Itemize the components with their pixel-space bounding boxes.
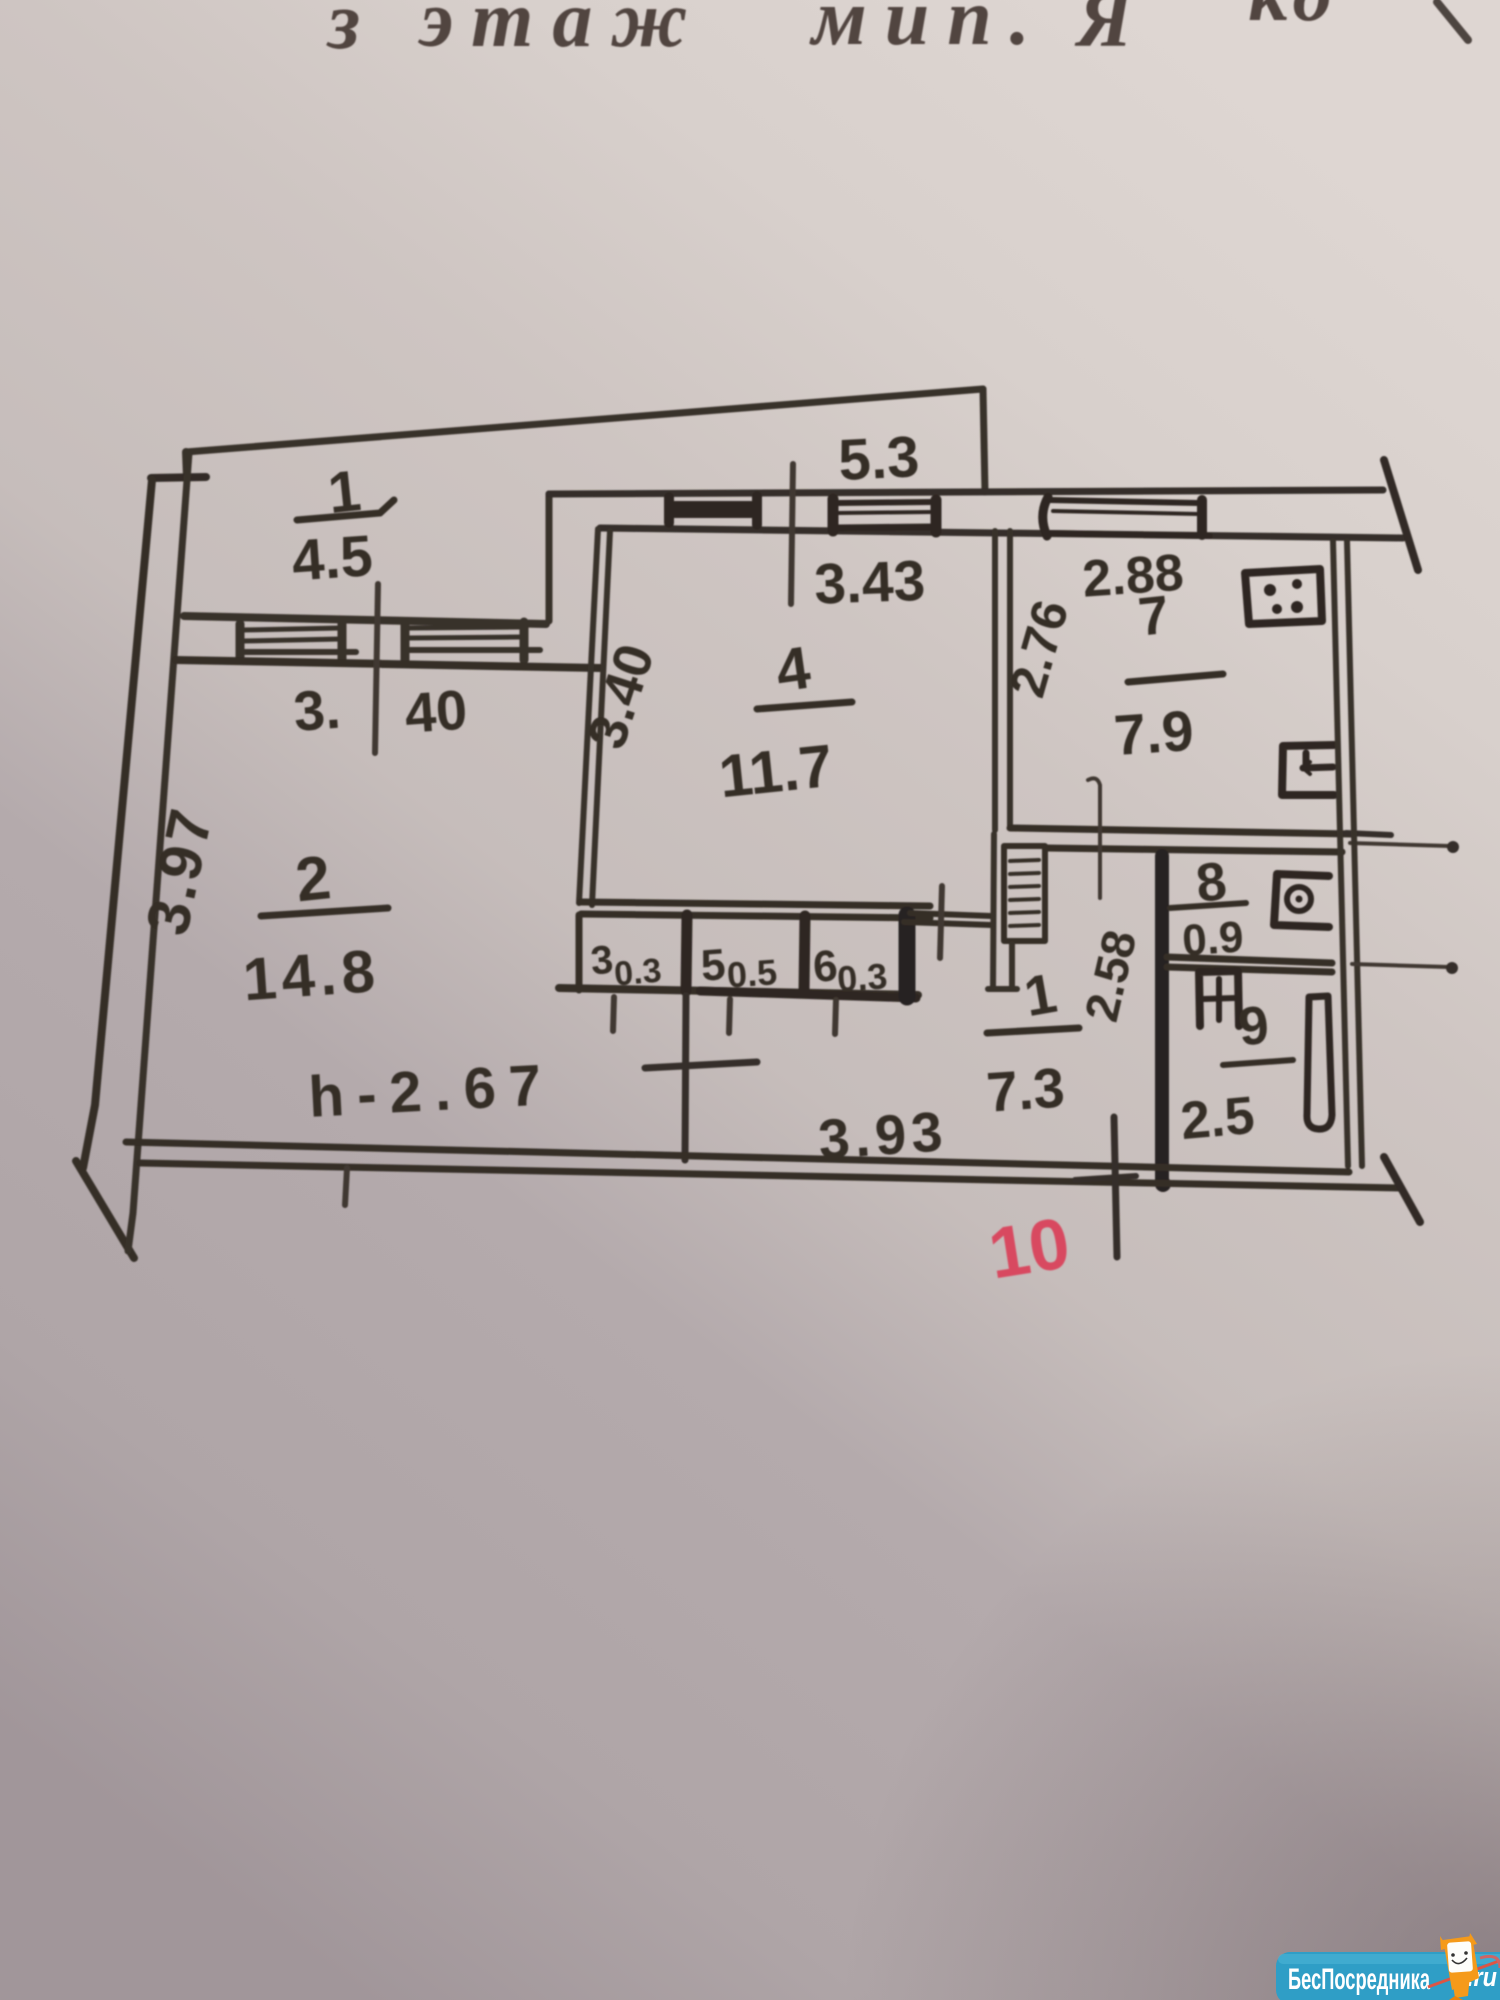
svg-text:2.5: 2.5 [1178,1086,1257,1151]
svg-text:Я: Я [1074,0,1135,64]
svg-text:БесПосредника: БесПосредника [1288,1963,1430,1996]
svg-text:7: 7 [1136,585,1172,648]
svg-text:7.3: 7.3 [985,1055,1067,1123]
svg-text:6: 6 [811,941,839,992]
svg-text:3.93: 3.93 [816,1099,949,1171]
svg-text:11.7: 11.7 [716,732,836,810]
svg-text:h-2.67: h-2.67 [307,1052,556,1130]
svg-text:0.5: 0.5 [726,951,779,995]
svg-text:мип.: мип. [809,0,1048,62]
svg-text:7.9: 7.9 [1112,699,1196,768]
svg-text:40: 40 [403,678,470,745]
svg-text:5: 5 [699,940,727,991]
svg-text:4.5: 4.5 [290,523,375,593]
svg-text:10: 10 [983,1203,1075,1295]
svg-text:0.9: 0.9 [1181,912,1245,965]
svg-text:3.43: 3.43 [813,549,926,617]
svg-text:0.3: 0.3 [836,955,889,999]
svg-text:з: з [326,0,360,66]
svg-text:14.8: 14.8 [241,937,382,1013]
svg-text:2.88: 2.88 [1080,544,1185,609]
svg-text:2: 2 [292,843,334,915]
svg-text:0.3: 0.3 [613,952,663,994]
svg-text:3: 3 [589,938,615,984]
svg-text:9: 9 [1236,995,1272,1058]
svg-text:3.: 3. [292,677,343,743]
svg-text:ко: ко [1248,0,1340,37]
svg-text:5.3: 5.3 [837,424,921,493]
svg-text:этаж: этаж [417,0,707,64]
